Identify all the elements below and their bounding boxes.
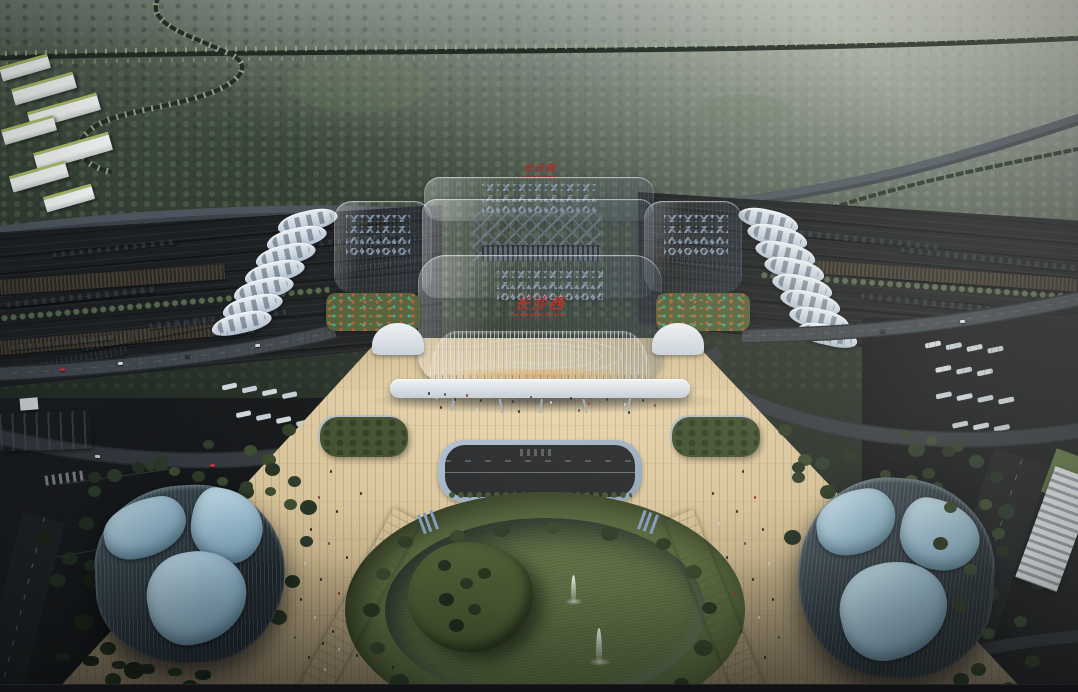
plaza-crosswalk	[520, 449, 554, 456]
median-tree-row-left	[145, 462, 156, 471]
facade-calligraphy-subline	[515, 314, 565, 316]
plaza-edge-tree-row-right	[778, 424, 792, 436]
tree-ring-right-pavilion	[792, 462, 805, 473]
crowd-plaza-right	[742, 470, 744, 473]
roadside-tree-row-right	[922, 468, 935, 479]
tree-cluster-bottom-left	[36, 530, 52, 543]
crowd-plaza-left	[330, 470, 332, 473]
car	[210, 464, 215, 467]
car	[60, 368, 65, 372]
skylight-cluster-west	[346, 215, 410, 255]
bottom-road-strip	[0, 684, 1078, 692]
skylight-cluster-east	[664, 215, 728, 255]
pond-tree-ring	[398, 536, 413, 548]
facade-calligraphy: 长沙西	[489, 297, 591, 312]
glass-pavilion-right	[798, 478, 994, 678]
low-canopy-structure-left	[0, 410, 93, 451]
tree-ring-left-pavilion	[88, 472, 101, 483]
facade-lens-pattern	[500, 348, 582, 364]
hedge-row-bottom	[28, 648, 42, 656]
tree-island	[320, 417, 408, 457]
station-building: 长沙西 长沙西	[332, 163, 744, 399]
entrance-canopy	[390, 379, 690, 398]
aerial-rendering: 长沙西 长沙西	[0, 0, 1078, 692]
car	[960, 320, 965, 324]
rooftop-sign: 长沙西	[512, 165, 569, 174]
crowd-pond-paths	[322, 642, 324, 645]
tree-island	[672, 417, 760, 457]
island-tree-cluster	[438, 560, 451, 571]
crowd-entrance	[428, 392, 430, 395]
parking-tree-cluster-right	[900, 430, 911, 439]
glass-pavilion-left	[95, 485, 285, 663]
car	[95, 455, 100, 458]
plaza-edge-tree-row-left	[282, 424, 296, 436]
